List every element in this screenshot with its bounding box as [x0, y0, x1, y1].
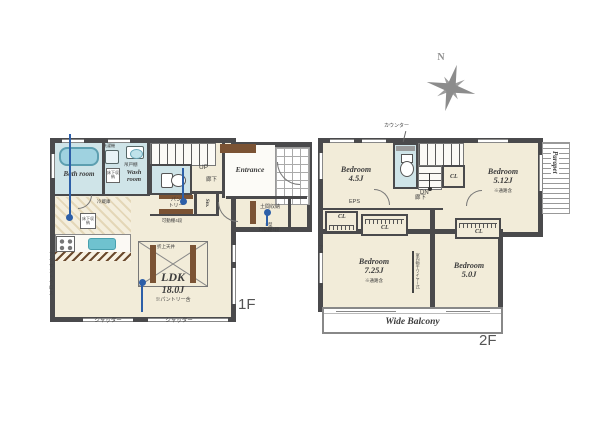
stairs-1f	[150, 143, 216, 166]
closet-3: CL	[455, 218, 501, 239]
parapet-strip: Parapet	[542, 142, 570, 214]
panorama-pin-line	[141, 282, 143, 312]
window	[232, 245, 236, 262]
window	[62, 139, 84, 143]
toilet-bowl-icon	[400, 161, 414, 177]
counter-strip	[396, 146, 415, 151]
wall	[102, 143, 105, 195]
window	[330, 139, 354, 143]
toilet-room-2f	[393, 143, 418, 189]
panorama-pin-line	[69, 134, 71, 217]
storage-label: Sto.	[204, 193, 210, 213]
balcony-floor-line	[324, 313, 501, 314]
stairs-2f-upper	[418, 143, 464, 167]
accent-cloth-1f-label: アクセントクロス	[49, 252, 54, 322]
floorplan-page: N Bath room 洗濯機 吊戸棚 床下収納 Wash room	[0, 0, 600, 446]
wall	[226, 196, 307, 199]
hanging-cupboard-label: 吊戸棚	[124, 162, 138, 167]
closet-label: CL	[338, 214, 346, 221]
floor1-plan: Bath room 洗濯機 吊戸棚 床下収納 Wash room UP 廊下 E…	[50, 138, 312, 322]
closet-stairs: CL	[442, 165, 465, 188]
stairs-up-label: UP	[199, 164, 208, 171]
floor2-label: 2F	[479, 332, 497, 349]
shutter-label-2: シャッター	[146, 318, 212, 324]
floor2-plan: Bedroom 4.5J カウンター DN CL Bedroom 5.12J ※…	[318, 133, 570, 358]
panorama-pin[interactable]	[180, 198, 187, 205]
window	[232, 268, 236, 304]
wall	[323, 208, 443, 211]
bedroom-50-label: Bedroom 5.0J	[440, 261, 498, 280]
washer-label: 洗濯機	[103, 144, 115, 149]
window	[108, 139, 130, 143]
underfloor-storage-kitchen-box: 床下収納	[80, 213, 96, 229]
pantry-label: パントリー	[157, 198, 195, 210]
wall	[194, 194, 197, 215]
fridge-label: 冷蔵庫	[97, 199, 111, 204]
wash-basin-icon	[126, 146, 144, 159]
panorama-pin-line	[182, 168, 184, 201]
window	[539, 155, 543, 191]
raised-ceiling-label: 折上天井	[156, 244, 176, 249]
panorama-pin[interactable]	[66, 214, 73, 221]
shoe-cabinet	[220, 144, 256, 153]
hallway-2f-label: 廊下	[415, 195, 426, 201]
kitchen-counter-edge	[55, 252, 131, 261]
hallway-1f-label: 廊下	[206, 177, 217, 183]
bathtub-icon	[59, 147, 99, 166]
bedroom-725-label: Bedroom 7.25J ※通路含	[341, 257, 407, 283]
kitchen-sink-icon	[88, 238, 116, 250]
pantry-shelf-note: 可動棚4段	[148, 218, 196, 223]
washroom-label: Wash room	[120, 169, 148, 184]
wall	[430, 209, 435, 310]
closet-label: CL	[475, 229, 483, 236]
closet-1: CL	[325, 211, 358, 233]
floor1-label: 1F	[238, 296, 256, 313]
window	[446, 308, 490, 312]
bedroom-45-label: Bedroom 4.5J	[326, 165, 386, 184]
entrance-label: Entrance	[228, 166, 272, 175]
indoor-drying-wire	[412, 251, 414, 293]
bathroom-label: Bath room	[57, 170, 101, 178]
window	[319, 153, 323, 179]
washing-machine-icon	[105, 150, 119, 164]
underfloor-storage-box: 床下収納	[106, 168, 120, 183]
panorama-pin[interactable]	[139, 279, 146, 286]
toilet-room-1f	[150, 164, 192, 195]
closet-label: CL	[381, 225, 389, 232]
window	[362, 139, 386, 143]
panorama-pin[interactable]	[264, 209, 271, 216]
compass-rose-icon	[418, 57, 484, 119]
ldk-size: 18.0J	[140, 285, 206, 297]
ldk-note: ※パントリー含	[140, 298, 206, 304]
doma-shelf-note: L型可動棚4段	[246, 222, 292, 232]
stove-icon	[56, 236, 75, 252]
ldk-name: LDK	[140, 271, 206, 285]
window	[478, 139, 508, 143]
window	[319, 253, 323, 283]
indoor-drying-label: 室内物干ワイヤー式	[415, 253, 420, 299]
window	[336, 308, 396, 312]
wall	[150, 214, 219, 217]
parapet-label: Parapet	[551, 151, 559, 174]
eps-label: EPS	[349, 199, 360, 205]
closet-2: CL	[361, 214, 408, 236]
balcony-label: Wide Balcony	[324, 317, 501, 328]
window	[51, 154, 55, 178]
counter-label: カウンター	[384, 124, 409, 130]
closet-label: CL	[450, 174, 458, 181]
shutter-label-1: シャッター	[78, 318, 138, 324]
